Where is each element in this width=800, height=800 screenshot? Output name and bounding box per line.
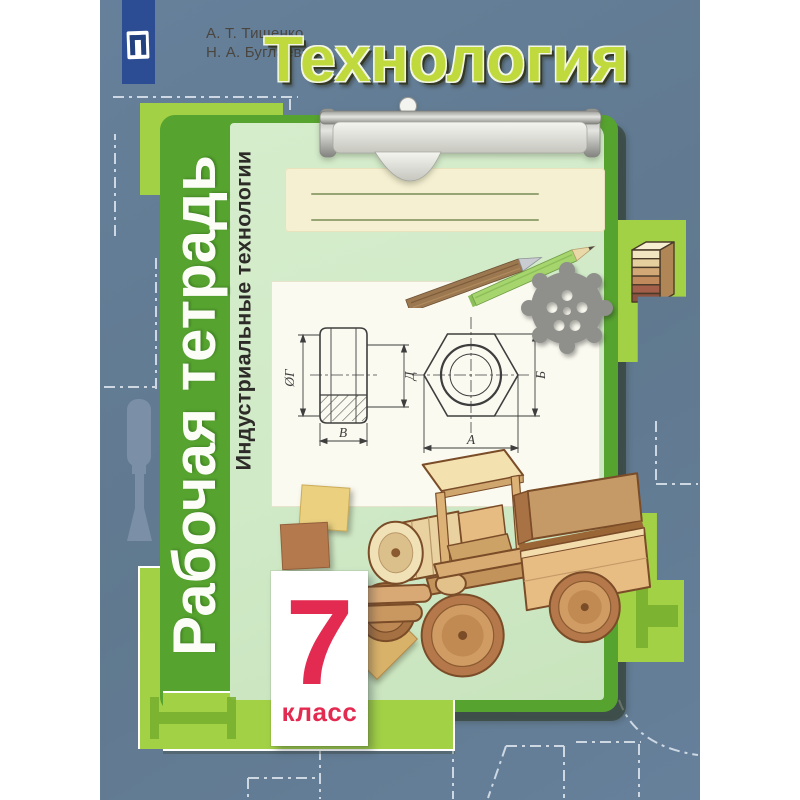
subtitle-label: Индустриальные технологии (232, 150, 257, 470)
subtitle-vertical: Индустриальные технологии (226, 132, 262, 488)
wooden-truck-illustration (334, 430, 672, 686)
metal-ornament-icon (512, 260, 622, 355)
dim-label-width: В (339, 425, 347, 440)
nut-side-view (310, 328, 377, 423)
grade-word: класс (282, 697, 358, 728)
grade-number: 7 (286, 581, 354, 703)
dim-label-across-corners: Б (533, 371, 548, 380)
publisher-logo-strip (122, 0, 155, 84)
chisel-silhouette-icon (127, 399, 152, 541)
series-vertical-banner: Рабочая тетрадь (158, 116, 232, 694)
lime-tab (618, 220, 686, 362)
writing-line (311, 193, 539, 195)
i-beam-glyph (150, 697, 236, 739)
screenshot: Рабочая тетрадь Индустриальные технологи… (0, 0, 800, 800)
wood-square (280, 522, 330, 570)
clipboard-clip-icon (313, 95, 609, 187)
writing-line (311, 219, 539, 221)
dim-label-diameter: ØГ (282, 368, 297, 388)
publisher-logo-icon (127, 31, 150, 60)
series-label: Рабочая тетрадь (161, 154, 230, 655)
wood-stack-icon (628, 232, 676, 306)
dim-label-height: Д (402, 370, 417, 382)
book-cover: Рабочая тетрадь Индустриальные технологи… (100, 0, 700, 800)
grade-card: 7 класс (271, 571, 368, 746)
book-title: Технология (264, 22, 629, 96)
